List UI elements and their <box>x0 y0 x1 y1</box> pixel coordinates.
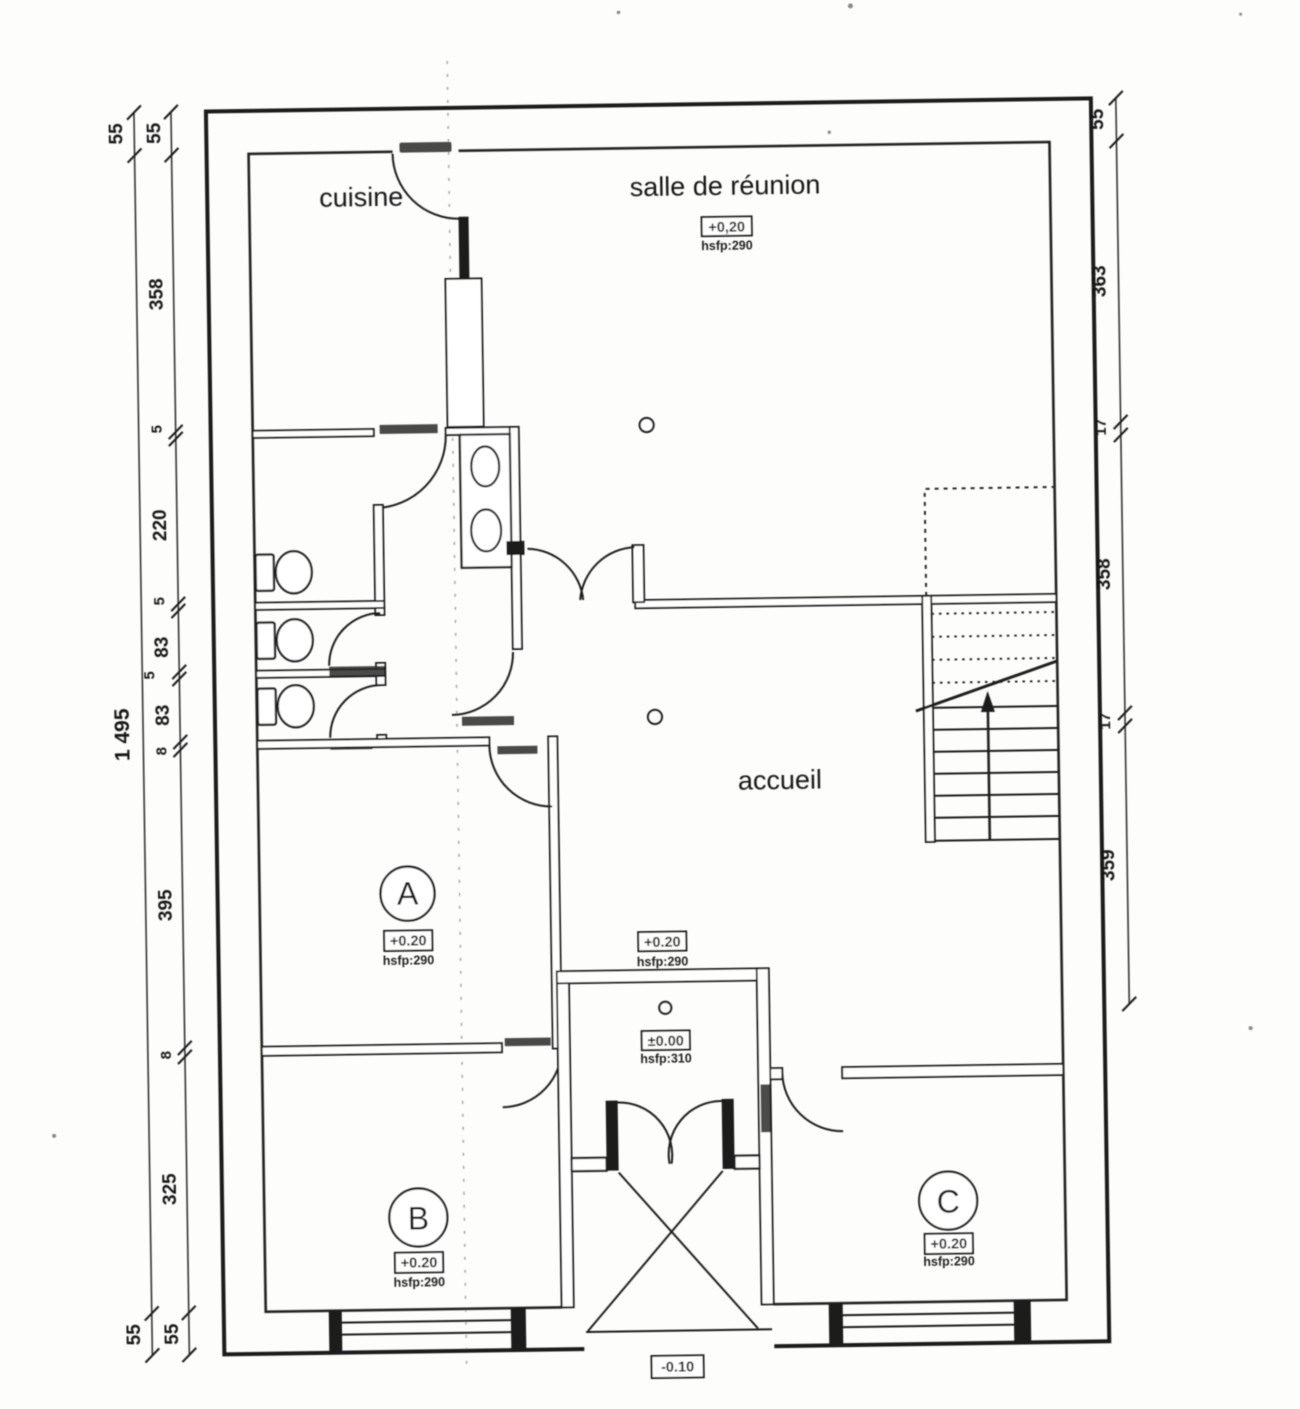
room-label-c: C <box>936 1183 960 1219</box>
svg-text:55: 55 <box>106 123 127 145</box>
svg-text:55: 55 <box>1087 108 1108 130</box>
svg-text:8: 8 <box>158 1051 175 1060</box>
svg-text:83: 83 <box>152 637 173 658</box>
window-room-c <box>829 1300 1032 1345</box>
room-label-accueil: accueil <box>738 764 822 795</box>
entry-door-leaf <box>606 1101 619 1171</box>
svg-text:395: 395 <box>155 889 176 921</box>
entry-door-leaf <box>722 1099 735 1169</box>
svg-text:1 495: 1 495 <box>111 708 135 761</box>
window-room-b <box>329 1308 527 1353</box>
level-vestibule: ±0.00 <box>648 1034 684 1051</box>
svg-text:5: 5 <box>149 425 166 434</box>
svg-text:5: 5 <box>151 597 168 606</box>
svg-text:83: 83 <box>153 704 174 725</box>
svg-text:55: 55 <box>144 122 165 144</box>
entry-steps <box>584 1170 772 1332</box>
ceiling-a: hsfp:290 <box>383 953 435 968</box>
svg-text:359: 359 <box>1098 849 1119 881</box>
svg-text:325: 325 <box>160 1173 181 1205</box>
ceiling-vestibule: hsfp:310 <box>640 1051 692 1066</box>
dimension-chain-left-inner: 55 358 5 220 5 83 5 83 8 395 8 325 55 <box>133 105 197 1363</box>
svg-text:55: 55 <box>124 1324 145 1346</box>
level-a: +0.20 <box>390 933 427 950</box>
svg-text:17: 17 <box>1093 419 1110 436</box>
exterior-walls <box>206 98 1109 1354</box>
sink-basin <box>471 509 502 551</box>
hall-salle-wall <box>506 533 1056 610</box>
entry-door-arc <box>668 1101 723 1164</box>
floor-plan-page: cuisine salle de réunion accueil +0,20 h… <box>0 0 1300 1409</box>
ceiling-b: hsfp:290 <box>394 1275 446 1290</box>
double-door-arc <box>527 548 583 601</box>
level-c: +0.20 <box>930 1236 967 1253</box>
room-label-a: A <box>397 875 420 911</box>
ceiling-salle: hsfp:290 <box>701 238 753 253</box>
staircase <box>913 487 1060 842</box>
room-c-door-arc <box>782 1071 843 1132</box>
stall2-door-arc <box>328 613 381 666</box>
svg-text:358: 358 <box>1094 558 1115 590</box>
svg-text:55: 55 <box>162 1323 183 1345</box>
ceiling-lights <box>640 418 672 1014</box>
stair-up-arrow-line <box>988 701 990 840</box>
toilet <box>256 619 313 662</box>
svg-text:17: 17 <box>1097 713 1114 730</box>
closet-duct <box>445 278 483 427</box>
ceiling-c: hsfp:290 <box>923 1254 975 1269</box>
entry-door-arc <box>618 1102 673 1165</box>
double-door-arc <box>579 547 635 600</box>
vestibule-walls <box>557 964 1067 1332</box>
toilet <box>257 685 314 728</box>
wc-lobby-door-arc <box>374 435 447 508</box>
svg-text:363: 363 <box>1089 265 1110 297</box>
svg-text:5: 5 <box>141 671 158 680</box>
svg-text:8: 8 <box>153 747 170 756</box>
level-hall: +0.20 <box>644 935 681 952</box>
sanitary-block <box>253 423 524 751</box>
corridor-door-arc <box>451 652 514 715</box>
floor-plan-svg: cuisine salle de réunion accueil +0,20 h… <box>0 0 1300 1409</box>
room-label-salle: salle de réunion <box>630 169 821 202</box>
ceiling-hall: hsfp:290 <box>637 954 689 969</box>
toilet <box>255 551 312 594</box>
stair-up-arrow-head <box>981 691 995 712</box>
room-label-cuisine: cuisine <box>319 182 403 213</box>
svg-text:358: 358 <box>146 278 167 310</box>
room-b-door-arc <box>502 1046 563 1107</box>
stall3-door-arc <box>329 685 382 738</box>
sink-basin <box>471 446 500 486</box>
level-exterior: -0.10 <box>661 1359 694 1375</box>
svg-text:220: 220 <box>150 509 171 541</box>
room-label-b: B <box>407 1200 429 1236</box>
cuisine-door <box>392 142 469 280</box>
level-salle: +0,20 <box>708 220 745 237</box>
level-b: +0.20 <box>401 1255 438 1272</box>
